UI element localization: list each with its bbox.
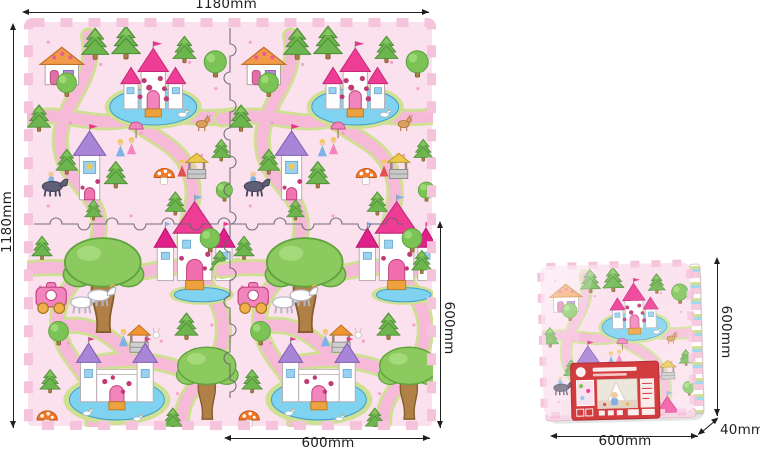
play-mat-artwork <box>28 22 432 426</box>
package-height-arrowhead-top <box>714 257 720 264</box>
mat-width-arrowhead-left <box>22 9 29 15</box>
mat-height-label: 1180mm <box>0 191 14 253</box>
mat-height-arrowhead-bottom <box>10 421 16 428</box>
tile-width-arrowhead-left <box>224 435 231 441</box>
package-artwork <box>536 258 716 432</box>
label-mat-thumbnail <box>576 380 595 406</box>
package-label <box>571 361 660 420</box>
tile-width-label: 600mm <box>288 436 368 449</box>
mat-width-dimension-line <box>24 12 429 13</box>
tile-width-arrowhead-right <box>423 435 430 441</box>
tile-height-label: 600mm <box>442 297 456 359</box>
product-dimension-diagram: 1180mm 1180mm 600mm 600mm 600mm 600mm 40… <box>0 0 760 449</box>
label-photo <box>597 379 638 409</box>
mat-height-arrowhead-top <box>10 23 16 30</box>
mat-width-arrowhead-right <box>422 9 429 15</box>
package-illustration <box>536 258 716 432</box>
tile-height-arrowhead-bottom <box>437 421 443 428</box>
package-height-label: 600mm <box>719 301 733 363</box>
assembled-mat-illustration <box>28 22 432 426</box>
package-width-label: 600mm <box>587 434 663 448</box>
package-thickness-label: 40mm <box>720 423 760 437</box>
mat-width-label: 1180mm <box>186 0 266 11</box>
tile-height-arrowhead-top <box>437 221 443 228</box>
label-text-block <box>640 378 655 407</box>
package-width-arrowhead-left <box>550 433 557 439</box>
